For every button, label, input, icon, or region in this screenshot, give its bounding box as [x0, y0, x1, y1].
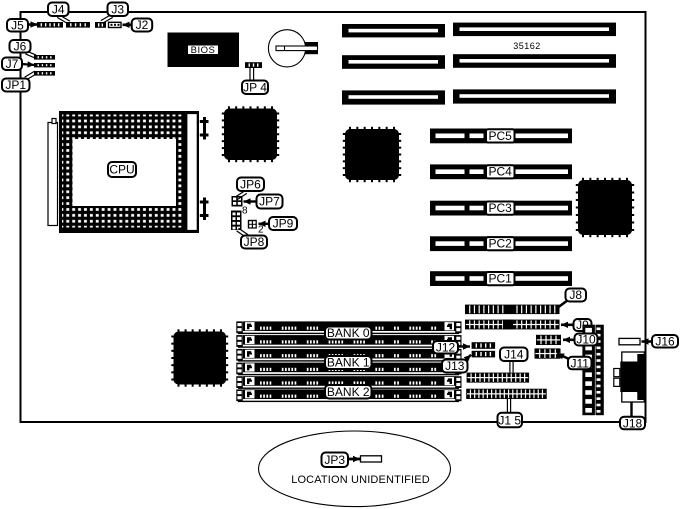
svg-text:J6: J6: [14, 39, 27, 53]
svg-text:J5: J5: [11, 18, 24, 32]
svg-text:J2: J2: [136, 18, 149, 32]
svg-text:J3: J3: [111, 2, 124, 16]
svg-text:J13: J13: [445, 359, 465, 373]
svg-text:BANK 0: BANK 0: [327, 326, 370, 340]
svg-text:J18: J18: [623, 416, 643, 430]
svg-text:PC2: PC2: [489, 237, 513, 251]
svg-text:J16: J16: [655, 334, 675, 348]
svg-text:J4: J4: [52, 2, 65, 16]
svg-text:JP8: JP8: [244, 235, 265, 249]
svg-text:JP6: JP6: [240, 177, 261, 191]
svg-text:BANK 2: BANK 2: [327, 385, 370, 399]
svg-text:PC4: PC4: [489, 165, 513, 179]
svg-text:J11: J11: [571, 356, 590, 370]
svg-text:J7: J7: [6, 57, 19, 71]
svg-text:8: 8: [242, 206, 248, 217]
svg-text:PC1: PC1: [489, 272, 513, 286]
svg-text:J1 5: J1 5: [498, 413, 521, 427]
svg-text:CPU: CPU: [109, 163, 134, 177]
svg-text:BIOS: BIOS: [191, 45, 216, 56]
svg-text:PC3: PC3: [489, 201, 513, 215]
svg-text:JP7: JP7: [259, 195, 280, 209]
svg-text:JP 4: JP 4: [243, 80, 267, 94]
svg-text:PC5: PC5: [489, 129, 513, 143]
svg-text:BANK 1: BANK 1: [327, 356, 370, 370]
svg-text:LOCATION UNIDENTIFIED: LOCATION UNIDENTIFIED: [291, 474, 430, 486]
svg-text:2: 2: [258, 225, 264, 236]
svg-text:35162: 35162: [513, 41, 541, 51]
svg-text:JP1: JP1: [5, 78, 26, 92]
svg-text:J10: J10: [576, 333, 596, 347]
svg-text:J8: J8: [569, 288, 582, 302]
svg-text:J14: J14: [504, 347, 524, 361]
svg-text:JP3: JP3: [324, 453, 345, 467]
svg-text:JP9: JP9: [273, 217, 294, 231]
svg-text:J12: J12: [436, 340, 456, 354]
